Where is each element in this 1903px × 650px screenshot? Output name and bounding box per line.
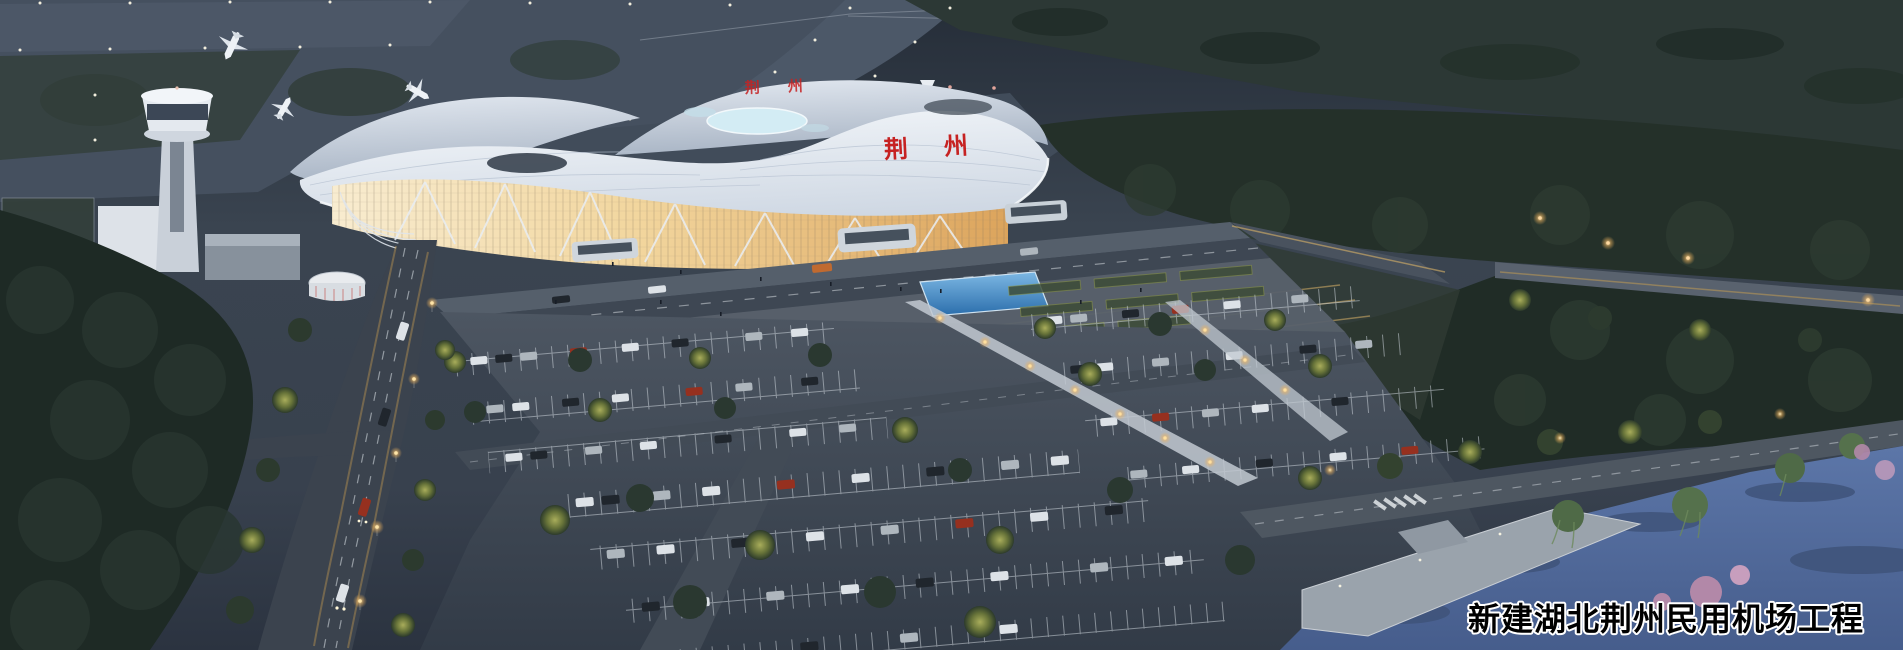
- project-caption: 新建湖北荆州民用机场工程: [1468, 600, 1864, 638]
- rooftop-sign: 荆州: [745, 76, 832, 97]
- rendering-canvas: 荆州 荆州: [0, 0, 1903, 650]
- roof-skylight: [707, 108, 807, 134]
- roof-courtyard-opening: [924, 99, 992, 115]
- airport-rendering-image: 荆州 荆州: [0, 0, 1903, 650]
- roof-courtyard-opening: [487, 153, 567, 173]
